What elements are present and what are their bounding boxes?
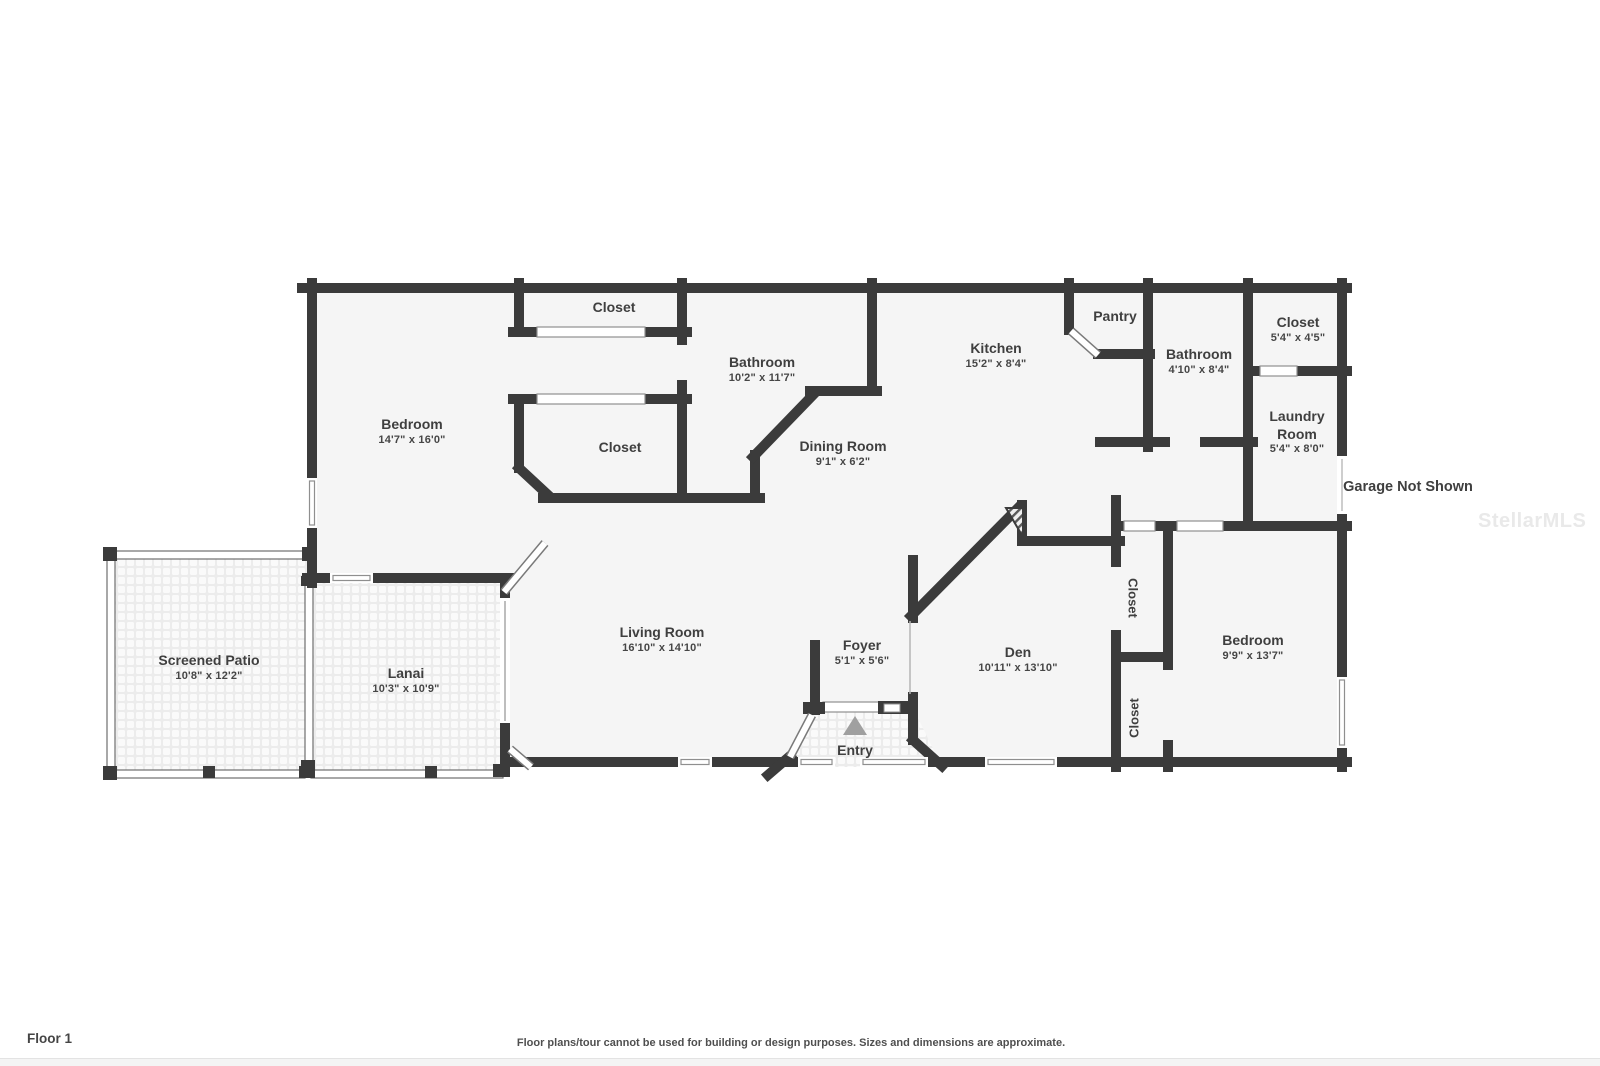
room-name: Closet — [599, 439, 642, 457]
room-name: Foyer — [835, 637, 890, 655]
label-closet-top: Closet — [593, 299, 636, 317]
label-dining-room: Dining Room 9'1" x 6'2" — [799, 438, 886, 469]
floor-plan-page: Bedroom 14'7" x 16'0" Closet Bathroom 10… — [0, 0, 1600, 1066]
floor-number-label: Floor 1 — [27, 1031, 72, 1046]
label-lanai: Lanai 10'3" x 10'9" — [372, 665, 439, 696]
label-pantry: Pantry — [1093, 308, 1137, 326]
room-dims: 5'4" x 8'0" — [1251, 443, 1343, 457]
label-screened-patio: Screened Patio 10'8" x 12'2" — [158, 652, 259, 683]
room-name: Laundry Room — [1251, 408, 1343, 443]
room-dims: 5'1" x 5'6" — [835, 655, 890, 669]
room-dims: 10'3" x 10'9" — [372, 683, 439, 697]
room-name: Bathroom — [1166, 346, 1232, 364]
room-dims: 5'4" x 4'5" — [1271, 332, 1326, 346]
room-name: Den — [978, 644, 1057, 662]
room-name: Kitchen — [966, 340, 1027, 358]
room-name: Bedroom — [1222, 632, 1283, 650]
floor-plan-drawing — [0, 0, 1600, 1066]
room-dims: 15'2" x 8'4" — [966, 358, 1027, 372]
label-foyer: Foyer 5'1" x 5'6" — [835, 637, 890, 668]
label-entry: Entry — [837, 742, 873, 760]
label-kitchen: Kitchen 15'2" x 8'4" — [966, 340, 1027, 371]
stellar-mls-watermark: StellarMLS — [1478, 510, 1586, 533]
room-name: Entry — [837, 742, 873, 760]
room-name: Closet — [593, 299, 636, 317]
label-closet-bedroom2: Closet — [1127, 698, 1142, 738]
label-closet-right: Closet 5'4" x 4'5" — [1271, 314, 1326, 345]
room-dims: 16'10" x 14'10" — [620, 642, 705, 656]
label-bedroom-2: Bedroom 9'9" x 13'7" — [1222, 632, 1283, 663]
room-dims: 10'2" x 11'7" — [729, 372, 796, 386]
room-dims: 4'10" x 8'4" — [1166, 364, 1232, 378]
garage-note: Garage Not Shown — [1343, 479, 1473, 495]
room-name: Screened Patio — [158, 652, 259, 670]
label-bedroom-main: Bedroom 14'7" x 16'0" — [378, 416, 445, 447]
label-bathroom-2: Bathroom 4'10" x 8'4" — [1166, 346, 1232, 377]
room-dims: 9'1" x 6'2" — [799, 456, 886, 470]
label-den: Den 10'11" x 13'10" — [978, 644, 1057, 675]
disclaimer-text: Floor plans/tour cannot be used for buil… — [517, 1037, 1065, 1049]
label-living-room: Living Room 16'10" x 14'10" — [620, 624, 705, 655]
label-bathroom-main: Bathroom 10'2" x 11'7" — [729, 354, 796, 385]
room-name: Lanai — [372, 665, 439, 683]
room-name: Living Room — [620, 624, 705, 642]
room-dims: 10'8" x 12'2" — [158, 670, 259, 684]
room-dims: 14'7" x 16'0" — [378, 434, 445, 448]
label-closet-den: Closet — [1126, 578, 1141, 618]
room-name: Closet — [1271, 314, 1326, 332]
label-laundry-room: Laundry Room 5'4" x 8'0" — [1251, 408, 1343, 457]
label-closet-mid: Closet — [599, 439, 642, 457]
room-name: Bedroom — [378, 416, 445, 434]
room-dims: 9'9" x 13'7" — [1222, 650, 1283, 664]
room-name: Bathroom — [729, 354, 796, 372]
room-name: Pantry — [1093, 308, 1137, 326]
bottom-strip — [0, 1058, 1600, 1066]
room-dims: 10'11" x 13'10" — [978, 662, 1057, 676]
room-name: Dining Room — [799, 438, 886, 456]
